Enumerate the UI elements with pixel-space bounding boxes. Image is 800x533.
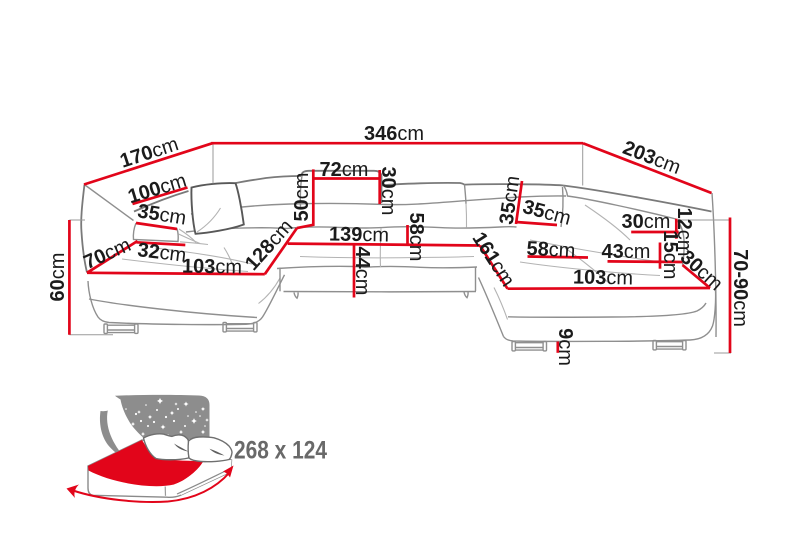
svg-text:70-90cm: 70-90cm bbox=[729, 249, 751, 327]
svg-text:43cm: 43cm bbox=[602, 241, 651, 263]
svg-text:9cm: 9cm bbox=[554, 328, 576, 366]
svg-text:44cm: 44cm bbox=[351, 247, 373, 296]
svg-text:60cm: 60cm bbox=[47, 253, 69, 302]
svg-text:139cm: 139cm bbox=[329, 223, 389, 246]
svg-text:50cm: 50cm bbox=[291, 173, 313, 222]
svg-text:268 x 124: 268 x 124 bbox=[234, 437, 327, 465]
svg-text:30cm: 30cm bbox=[377, 167, 399, 216]
svg-text:103cm: 103cm bbox=[182, 255, 242, 278]
svg-text:58cm: 58cm bbox=[526, 238, 576, 263]
svg-text:72cm: 72cm bbox=[320, 159, 369, 181]
svg-text:58cm: 58cm bbox=[405, 213, 427, 262]
svg-text:346cm: 346cm bbox=[364, 123, 424, 145]
svg-text:103cm: 103cm bbox=[573, 266, 633, 289]
svg-text:15cm: 15cm bbox=[659, 231, 681, 280]
